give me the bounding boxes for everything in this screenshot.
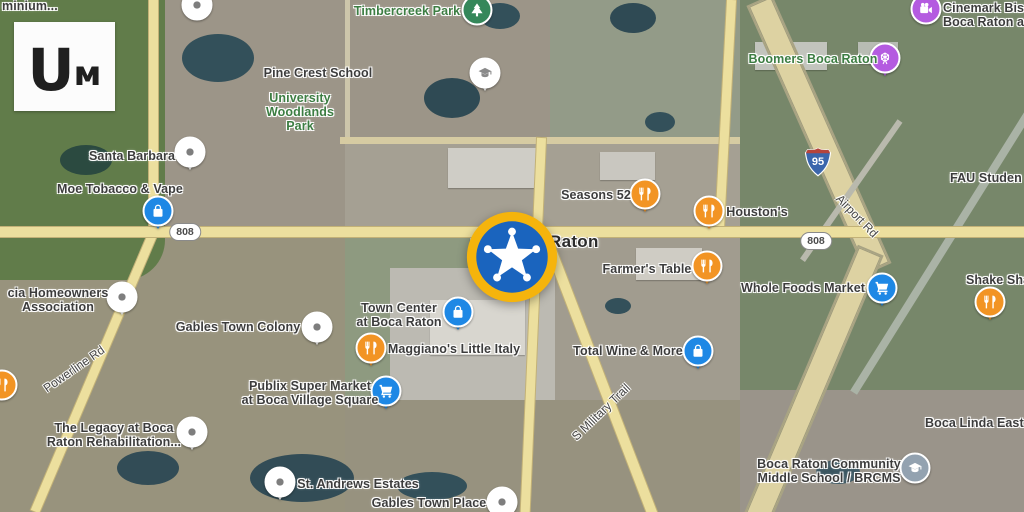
poi-label-line: Total Wine & More <box>573 344 683 358</box>
grocery-icon[interactable] <box>867 273 898 304</box>
route-number: 808 <box>176 226 194 238</box>
route-number: 808 <box>807 235 825 247</box>
route-number: 95 <box>804 156 832 168</box>
logo-letter-m: м <box>74 57 102 91</box>
place-pin-icon[interactable] <box>175 137 206 168</box>
poi-label-line: at Boca Raton <box>356 315 441 329</box>
restaurant-icon[interactable] <box>356 333 387 364</box>
poi-label-condominium-partial[interactable]: minium... <box>2 0 58 13</box>
poi-label-pine-crest-school[interactable]: Pine Crest School <box>264 66 373 80</box>
poi-label-university-woodlands-park[interactable]: UniversityWoodlandsPark <box>266 91 334 133</box>
restaurant-icon[interactable] <box>630 179 661 210</box>
lake <box>605 298 631 314</box>
poi-label-line: Gables Town Place <box>372 496 487 510</box>
poi-label-seasons-52[interactable]: Seasons 52 <box>561 188 631 202</box>
place-pin-icon[interactable] <box>265 467 296 498</box>
building <box>448 148 543 188</box>
poi-label-homeowners-association[interactable]: cia HomeownersAssociation <box>8 286 109 314</box>
building <box>600 152 655 180</box>
poi-label-santa-barbara[interactable]: Santa Barbara <box>89 149 175 163</box>
poi-label-line: Woodlands <box>266 105 334 119</box>
restaurant-icon[interactable] <box>975 287 1006 318</box>
poi-label-line: Farmer's Table <box>603 262 692 276</box>
poi-label-line: minium... <box>2 0 58 13</box>
state-route-shield: 808 <box>800 232 832 250</box>
poi-label-boca-linda-east[interactable]: Boca Linda East <box>925 416 1024 430</box>
poi-label-town-center-at-boca-raton[interactable]: Town Centerat Boca Raton <box>356 301 441 329</box>
poi-label-line: Seasons 52 <box>561 188 631 202</box>
poi-label-line: St. Andrews Estates <box>297 477 419 491</box>
poi-label-gables-town-colony[interactable]: Gables Town Colony <box>176 320 301 334</box>
poi-label-cinemark[interactable]: Cinemark BisBoca Raton an <box>943 1 1024 29</box>
shopping-icon[interactable] <box>143 196 174 227</box>
poi-label-whole-foods-market[interactable]: Whole Foods Market <box>741 281 865 295</box>
poi-label-line: Maggiano's Little Italy <box>388 342 520 356</box>
poi-label-line: cia Homeowners <box>8 286 109 300</box>
lake <box>424 78 480 118</box>
lake <box>117 451 179 485</box>
shopping-icon[interactable] <box>683 336 714 367</box>
restaurant-icon[interactable] <box>694 196 725 227</box>
poi-label-legacy-boca-rehabilitation[interactable]: The Legacy at BocaRaton Rehabilitation..… <box>47 421 181 449</box>
poi-label-publix-super-market[interactable]: Publix Super Marketat Boca Village Squar… <box>242 379 379 407</box>
poi-label-line: Park <box>266 119 334 133</box>
poi-label-farmers-table[interactable]: Farmer's Table <box>603 262 692 276</box>
poi-label-line: Gables Town Colony <box>176 320 301 334</box>
poi-label-st-andrews-estates[interactable]: St. Andrews Estates <box>297 477 419 491</box>
poi-label-houstons[interactable]: Houston's <box>726 205 788 219</box>
poi-label-moe-tobacco-vape[interactable]: Moe Tobacco & Vape <box>57 182 183 196</box>
poi-label-boca-raton-community-middle-school[interactable]: Boca Raton CommunityMiddle School / BRCM… <box>757 457 901 485</box>
school-icon[interactable] <box>900 453 931 484</box>
poi-label-gables-town-place[interactable]: Gables Town Place <box>372 496 487 510</box>
poi-label-line: FAU Studen <box>950 171 1022 185</box>
poi-label-line: Boca Raton Community <box>757 457 901 471</box>
lake <box>610 3 656 33</box>
poi-label-boomers-boca-raton[interactable]: Boomers Boca Raton <box>749 52 878 66</box>
restaurant-icon[interactable] <box>692 251 723 282</box>
poi-label-line: Boca Linda East <box>925 416 1024 430</box>
place-pin-icon[interactable] <box>107 282 138 313</box>
poi-label-line: Houston's <box>726 205 788 219</box>
place-pin-icon[interactable] <box>177 417 208 448</box>
school-icon[interactable] <box>470 58 501 89</box>
lake <box>645 112 675 132</box>
place-pin-icon[interactable] <box>302 312 333 343</box>
state-route-shield: 808 <box>169 223 201 241</box>
poi-label-fau-student[interactable]: FAU Studen <box>950 171 1022 185</box>
poi-label-line: Pine Crest School <box>264 66 373 80</box>
poi-label-total-wine-and-more[interactable]: Total Wine & More <box>573 344 683 358</box>
poi-label-line: Timbercreek Park <box>354 4 460 18</box>
interstate-shield: 95 <box>804 147 832 177</box>
poi-label-line: Cinemark Bis <box>943 1 1024 15</box>
poi-label-line: Shake Sha <box>966 273 1024 287</box>
logo-letter-u: U <box>28 41 73 99</box>
poi-label-line: University <box>266 91 334 105</box>
poi-label-maggianos-little-italy[interactable]: Maggiano's Little Italy <box>388 342 520 356</box>
map-canvas[interactable]: minium...Timbercreek ParkPine Crest Scho… <box>0 0 1024 512</box>
poi-label-line: Moe Tobacco & Vape <box>57 182 183 196</box>
poi-label-timbercreek-park[interactable]: Timbercreek Park <box>354 4 460 18</box>
poi-label-line: Santa Barbara <box>89 149 175 163</box>
event-marker-sheriff-star[interactable] <box>465 210 559 304</box>
poi-label-line: Boomers Boca Raton <box>749 52 878 66</box>
liveuamap-logo[interactable]: U м <box>14 22 115 111</box>
lake <box>182 34 254 82</box>
poi-label-line: Raton Rehabilitation... <box>47 435 181 449</box>
poi-label-line: Publix Super Market <box>242 379 379 393</box>
poi-label-line: Middle School / BRCMS <box>757 471 901 485</box>
poi-label-line: Association <box>8 300 109 314</box>
poi-label-shake-shack[interactable]: Shake Sha <box>966 273 1024 287</box>
poi-label-line: Town Center <box>356 301 441 315</box>
poi-label-line: Whole Foods Market <box>741 281 865 295</box>
poi-label-line: Boca Raton an <box>943 15 1024 29</box>
poi-label-line: The Legacy at Boca <box>47 421 181 435</box>
place-pin-icon[interactable] <box>487 487 518 512</box>
poi-label-line: at Boca Village Square <box>242 393 379 407</box>
